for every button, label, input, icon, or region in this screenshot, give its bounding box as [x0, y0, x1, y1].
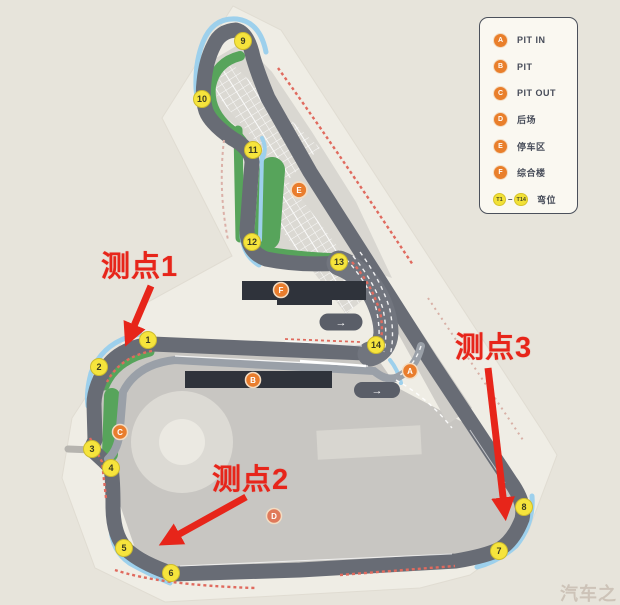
- legend-box: A PIT IN B PIT C PIT OUT D 后场 E 停车区 F 综合…: [479, 17, 578, 214]
- measure-point2-label: 测点2: [212, 456, 289, 498]
- facility-marker-parking: E: [291, 182, 307, 198]
- legend-label: 后场: [517, 113, 536, 126]
- legend-label: PIT OUT: [517, 88, 556, 98]
- legend-item-pit: B PIT: [493, 54, 577, 81]
- main-grandstand-building: [242, 281, 366, 300]
- svg-text:B: B: [250, 376, 256, 385]
- legend-label: PIT IN: [517, 35, 546, 45]
- legend-item-parking: E 停车区: [493, 133, 577, 160]
- svg-text:9: 9: [240, 36, 245, 46]
- facility-marker-pit-in: A: [403, 364, 418, 379]
- turn-marker: 8: [516, 499, 533, 516]
- legend-item-pit-out: C PIT OUT: [493, 80, 577, 107]
- paddock-building: [316, 425, 421, 459]
- svg-text:4: 4: [108, 463, 113, 473]
- legend-item-complex: F 综合楼: [493, 160, 577, 187]
- legend-turn-dash: –: [508, 195, 512, 204]
- turn-marker: 9: [235, 33, 252, 50]
- turn-marker: 3: [84, 441, 101, 458]
- svg-text:13: 13: [334, 257, 344, 267]
- turn-marker: 1: [140, 332, 157, 349]
- turn-marker: 14: [368, 337, 385, 354]
- legend-marker-e-icon: E: [493, 139, 508, 154]
- legend-marker-f-icon: F: [493, 165, 508, 180]
- direction-arrow-icon: →: [336, 317, 347, 329]
- measure-point3-label: 测点3: [455, 324, 532, 366]
- legend-label: 停车区: [517, 140, 546, 153]
- turn-marker: 5: [116, 540, 133, 557]
- svg-text:D: D: [271, 512, 277, 521]
- legend-item-turns: T1 – T14 弯位: [493, 186, 577, 213]
- svg-text:7: 7: [496, 546, 501, 556]
- legend-marker-c-icon: C: [493, 86, 508, 101]
- turn-marker: 4: [103, 460, 120, 477]
- building-annex: [277, 298, 332, 305]
- svg-text:2: 2: [96, 362, 101, 372]
- svg-text:10: 10: [197, 94, 207, 104]
- svg-text:3: 3: [89, 444, 94, 454]
- facility-marker-complex: F: [274, 283, 289, 298]
- svg-text:12: 12: [247, 237, 257, 247]
- legend-label: PIT: [517, 62, 533, 72]
- facility-marker-pit: B: [246, 373, 261, 388]
- svg-text:11: 11: [248, 145, 258, 155]
- legend-marker-b-icon: B: [493, 59, 508, 74]
- legend-turn-t1-icon: T1: [493, 193, 506, 206]
- turn-marker: 10: [194, 91, 211, 108]
- svg-text:F: F: [279, 286, 284, 295]
- svg-text:E: E: [296, 186, 302, 195]
- turn-marker: 12: [244, 234, 261, 251]
- svg-text:6: 6: [168, 568, 173, 578]
- turn-marker: 7: [491, 543, 508, 560]
- legend-label: 弯位: [537, 193, 556, 206]
- legend-item-rear-area: D 后场: [493, 107, 577, 134]
- watermark: 汽车之家: [560, 580, 620, 605]
- turn-marker: 11: [245, 142, 262, 159]
- facility-marker-pit-out: C: [113, 425, 128, 440]
- legend-marker-a-icon: A: [493, 33, 508, 48]
- legend-turn-t14-icon: T14: [514, 193, 527, 206]
- svg-text:5: 5: [121, 543, 126, 553]
- svg-text:1: 1: [145, 335, 150, 345]
- svg-text:8: 8: [521, 502, 526, 512]
- turn-marker: 6: [163, 565, 180, 582]
- legend-label: 综合楼: [517, 166, 546, 179]
- legend-marker-d-icon: D: [493, 112, 508, 127]
- legend-item-pit-in: A PIT IN: [493, 27, 577, 54]
- turn-marker: 13: [331, 254, 348, 271]
- facility-marker-rear-area: D: [267, 509, 282, 524]
- track-map: → → 1 2 3 4 5 6 7 8 9 10 11 12 13 14 A B…: [0, 0, 620, 605]
- svg-text:14: 14: [371, 340, 381, 350]
- measure-point1-label: 测点1: [101, 243, 178, 285]
- svg-text:A: A: [407, 367, 413, 376]
- direction-arrow-icon: →: [372, 385, 383, 397]
- svg-text:C: C: [117, 428, 123, 437]
- turn-marker: 2: [91, 359, 108, 376]
